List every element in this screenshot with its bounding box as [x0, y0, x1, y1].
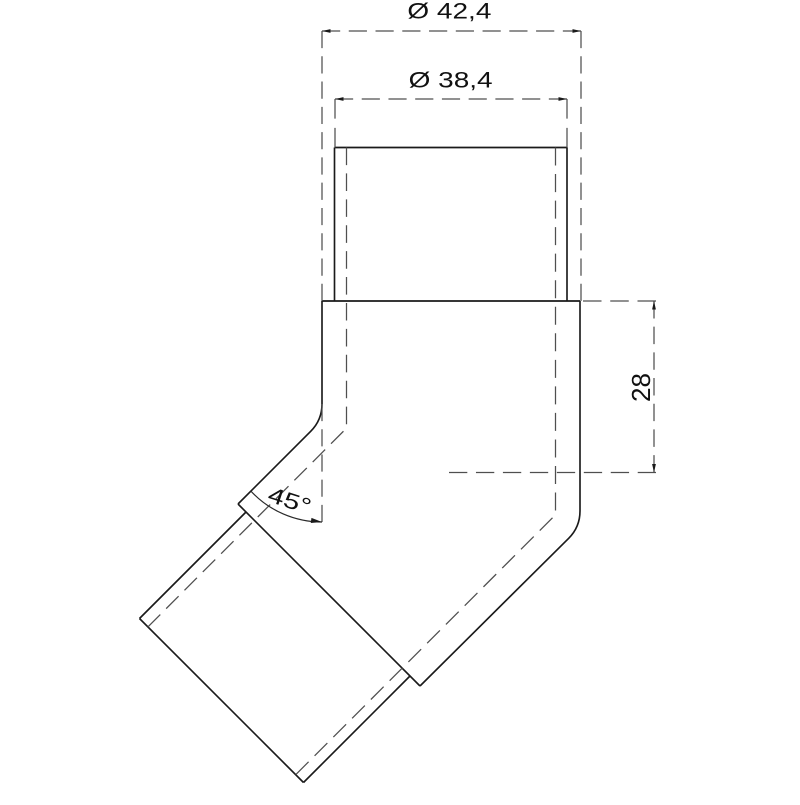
- svg-text:28: 28: [626, 373, 656, 402]
- svg-text:Ø 42,4: Ø 42,4: [407, 0, 491, 24]
- svg-text:Ø 38,4: Ø 38,4: [409, 68, 493, 93]
